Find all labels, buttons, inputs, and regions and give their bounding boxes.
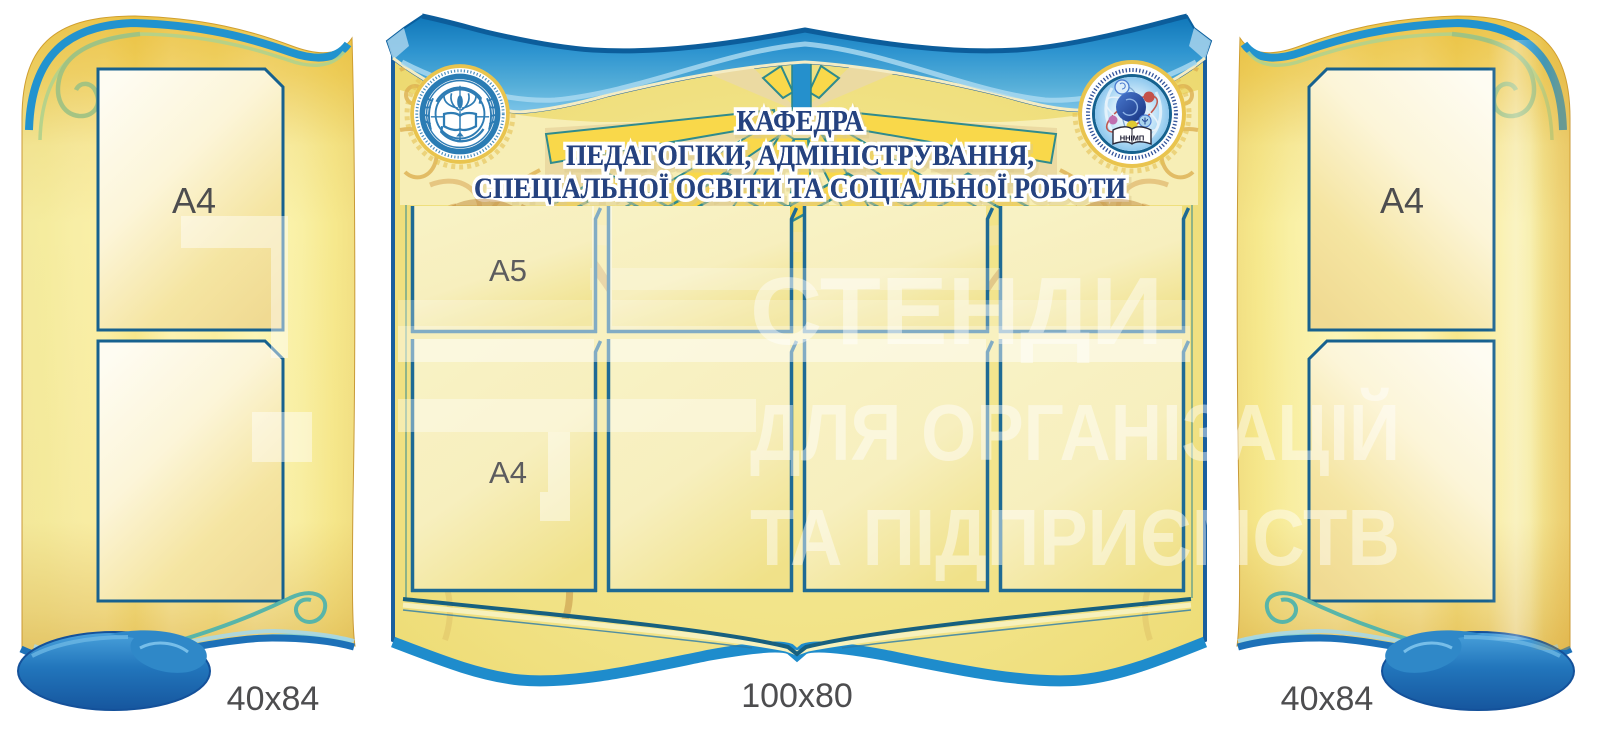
svg-text:ДЛЯ ОРГАНІЗАЦІЙ: ДЛЯ ОРГАНІЗАЦІЙ [750,387,1400,477]
svg-text:ННІМП: ННІМП [1120,134,1145,143]
svg-text:СТЕНДИ: СТЕНДИ [750,258,1163,365]
svg-text:A4: A4 [172,180,216,221]
svg-text:КАФЕДРА: КАФЕДРА [737,103,865,138]
svg-text:ТА ПІДПРИЄМСТВ: ТА ПІДПРИЄМСТВ [750,493,1400,582]
svg-text:A4: A4 [1380,180,1424,221]
svg-text:A4: A4 [489,455,527,490]
svg-text:100x80: 100x80 [741,677,853,715]
svg-text:40x84: 40x84 [1281,680,1374,718]
svg-text:A5: A5 [489,253,527,288]
svg-text:СПЕЦІАЛЬНОЇ ОСВІТИ ТА СОЦІАЛЬН: СПЕЦІАЛЬНОЇ ОСВІТИ ТА СОЦІАЛЬНОЇ РОБОТИ [474,172,1126,205]
svg-text:40x84: 40x84 [227,680,320,718]
svg-text:ПЕДАГОГІКИ, АДМІНІСТРУВАННЯ,: ПЕДАГОГІКИ, АДМІНІСТРУВАННЯ, [566,139,1034,172]
